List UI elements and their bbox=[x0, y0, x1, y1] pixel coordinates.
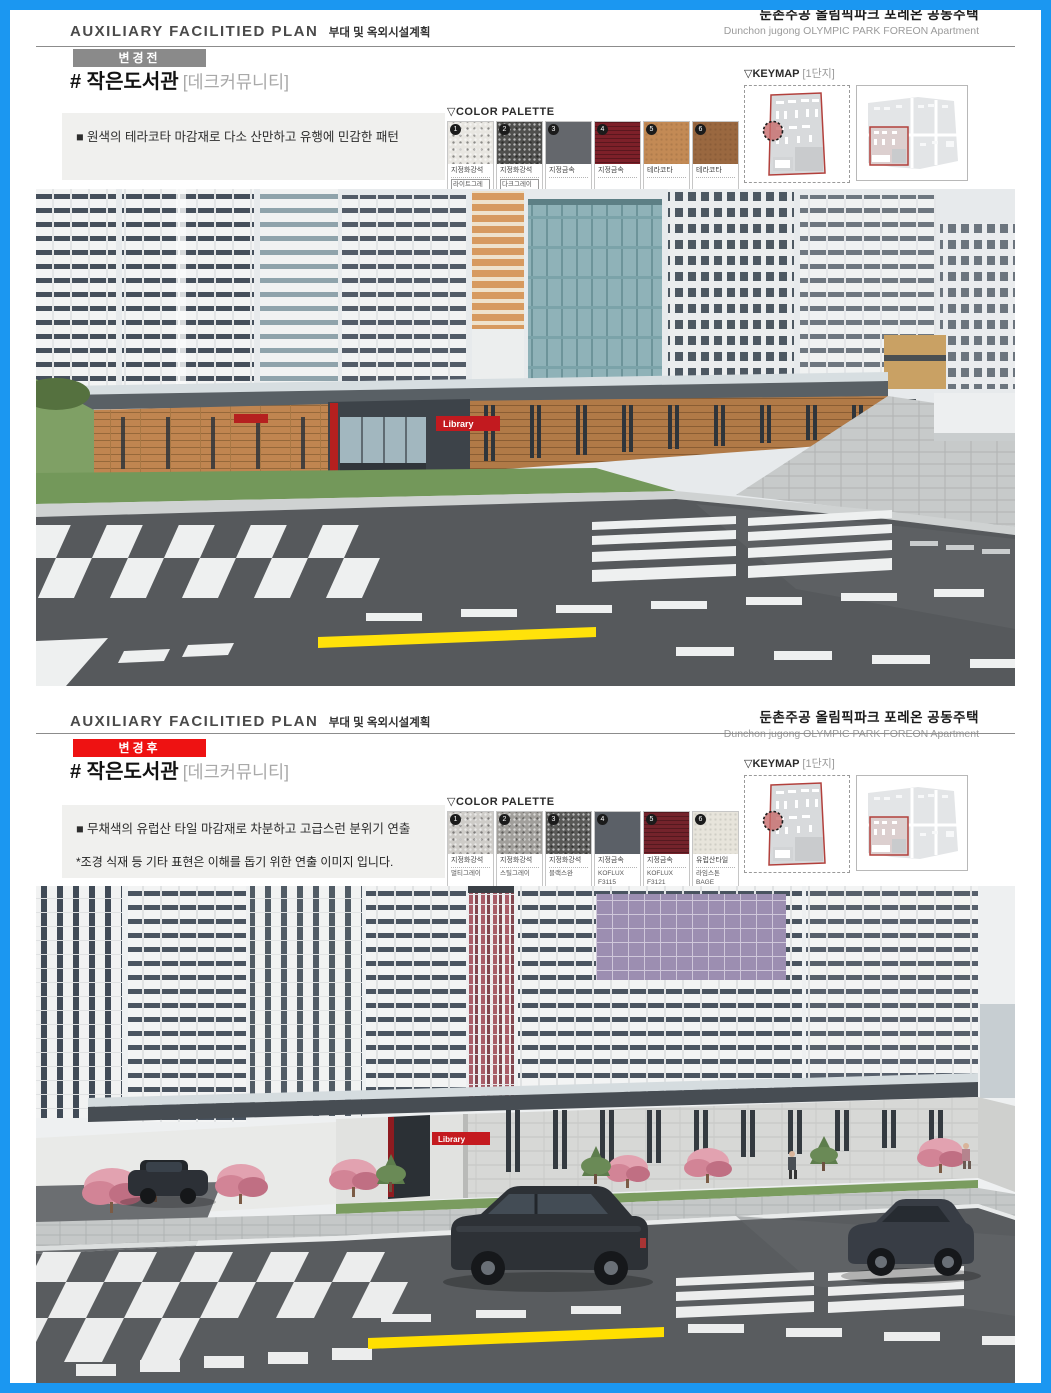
keymap-title: ▽KEYMAP [1단지] bbox=[744, 755, 968, 771]
swatch-color bbox=[647, 178, 686, 188]
swatch-material: 유럽산타일 bbox=[696, 856, 735, 868]
keymap-maps bbox=[744, 775, 968, 873]
swatch-number: 3 bbox=[548, 124, 559, 135]
small-sign bbox=[234, 414, 268, 423]
swatch-card: 3 지정화강석블랙스완 bbox=[545, 811, 592, 890]
keymap-site-plan bbox=[744, 85, 850, 183]
entrance-recess bbox=[388, 1115, 430, 1199]
keymap: ▽KEYMAP [1단지] bbox=[744, 65, 968, 183]
section-title-main: # 작은도서관 bbox=[70, 71, 179, 93]
swatch-material: 테라코타 bbox=[696, 166, 735, 178]
swatch-material: 지정화강석 bbox=[500, 856, 539, 868]
description-text: ■ 원색의 테라코타 마감재로 다소 산만하고 유행에 민감한 패턴 bbox=[76, 126, 431, 145]
color-palette-title: ▽COLOR PALETTE bbox=[447, 795, 739, 808]
render-after-svg: Library bbox=[36, 886, 1015, 1383]
swatch-number: 6 bbox=[695, 124, 706, 135]
swatch-color: KOFLUX F3121 bbox=[647, 868, 686, 887]
color-palette-title: ▽COLOR PALETTE bbox=[447, 105, 739, 118]
swatch-material: 지정금속 bbox=[598, 856, 637, 868]
location-marker bbox=[764, 812, 783, 831]
swatch-color bbox=[549, 178, 588, 188]
swatch-material: 테라코타 bbox=[647, 166, 686, 178]
keymap-maps bbox=[744, 85, 968, 183]
swatch-card: 4 지정금속KOFLUX F3115 bbox=[594, 811, 641, 890]
section-title-sub: [데크커뮤니티] bbox=[183, 762, 289, 782]
panel-before: AUXILIARY FACILITIED PLAN 부대 및 옥외시설계획 둔촌… bbox=[10, 10, 1041, 700]
swatch-card: 2 지정화강석스틸그레이 bbox=[496, 811, 543, 890]
swatch-number: 4 bbox=[597, 814, 608, 825]
keymap-label: ▽KEYMAP bbox=[744, 758, 799, 770]
plan-title-en: AUXILIARY FACILITIED PLAN bbox=[70, 23, 318, 40]
location-marker bbox=[764, 122, 783, 141]
svg-text:Library: Library bbox=[443, 419, 474, 429]
description-box: ■ 무채색의 유럽산 타일 마감재로 차분하고 고급스런 분위기 연출 *조경 … bbox=[62, 805, 445, 878]
swatch-row: 1 지정화강석멀티그레이 2 지정화강석스틸그레이 3 지정화강석블랙스완 4 … bbox=[447, 811, 739, 890]
color-palette: ▽COLOR PALETTE 1 지정화강석멀티그레이 2 지정화강석스틸그레이… bbox=[447, 795, 739, 890]
render-before-svg: Library bbox=[36, 189, 1015, 686]
swatch-number: 5 bbox=[646, 814, 657, 825]
keymap-title: ▽KEYMAP [1단지] bbox=[744, 65, 968, 81]
render-after: Library bbox=[36, 886, 1015, 1383]
project-name-en: Dunchon jugong OLYMPIC PARK FOREON Apart… bbox=[724, 25, 979, 37]
keymap-label: ▽KEYMAP bbox=[744, 68, 799, 80]
swatch-material: 지정금속 bbox=[598, 166, 637, 178]
material-swatch: 5 bbox=[644, 122, 689, 164]
swatch-number: 6 bbox=[695, 814, 706, 825]
description-footnote: *조경 식재 등 기타 표현은 이해를 돕기 위한 연출 이미지 입니다. bbox=[76, 853, 431, 870]
section-title: # 작은도서관[데크커뮤니티] bbox=[70, 65, 289, 94]
material-swatch: 2 bbox=[497, 122, 542, 164]
swatch-material: 지정금속 bbox=[647, 856, 686, 868]
render-before: Library bbox=[36, 189, 1015, 686]
swatch-material: 지정화강석 bbox=[549, 856, 588, 868]
panel-after: AUXILIARY FACILITIED PLAN 부대 및 옥외시설계획 둔촌… bbox=[10, 700, 1041, 1383]
svg-text:Library: Library bbox=[438, 1135, 466, 1144]
swatch-color bbox=[598, 178, 637, 188]
swatch-card: 1 지정화강석멀티그레이 bbox=[447, 811, 494, 890]
material-swatch: 6 bbox=[693, 812, 738, 854]
project-name-ko: 둔촌주공 올림픽파크 포레온 공동주택 bbox=[724, 10, 979, 23]
page-header-left: AUXILIARY FACILITIED PLAN 부대 및 옥외시설계획 bbox=[70, 23, 430, 41]
complex-plan-svg bbox=[862, 781, 962, 865]
section-title: # 작은도서관[데크커뮤니티] bbox=[70, 755, 289, 784]
complex-plan-svg bbox=[862, 91, 962, 175]
swatch-number: 3 bbox=[548, 814, 559, 825]
keymap-site-plan bbox=[744, 775, 850, 873]
swatch-material: 지정금속 bbox=[549, 166, 588, 178]
header-divider bbox=[36, 733, 1015, 734]
description-box: ■ 원색의 테라코타 마감재로 다소 산만하고 유행에 민감한 패턴 bbox=[62, 113, 445, 180]
material-swatch: 3 bbox=[546, 812, 591, 854]
swatch-card: 6 유럽산타일라임스톤 BAGE bbox=[692, 811, 739, 890]
site-plan-svg bbox=[749, 779, 845, 869]
page-header-right: 둔촌주공 올림픽파크 포레온 공동주택 Dunchon jugong OLYMP… bbox=[724, 10, 979, 37]
page-header-left: AUXILIARY FACILITIED PLAN 부대 및 옥외시설계획 bbox=[70, 713, 430, 731]
material-swatch: 1 bbox=[448, 812, 493, 854]
plan-title-en: AUXILIARY FACILITIED PLAN bbox=[70, 713, 318, 730]
plan-title-ko: 부대 및 옥외시설계획 bbox=[329, 717, 431, 729]
material-swatch: 2 bbox=[497, 812, 542, 854]
section-title-sub: [데크커뮤니티] bbox=[183, 72, 289, 92]
material-swatch: 6 bbox=[693, 122, 738, 164]
swatch-material: 지정화강석 bbox=[451, 856, 490, 868]
material-swatch: 3 bbox=[546, 122, 591, 164]
swatch-number: 4 bbox=[597, 124, 608, 135]
library-sign: Library bbox=[432, 1132, 490, 1145]
material-swatch: 5 bbox=[644, 812, 689, 854]
project-name-ko: 둔촌주공 올림픽파크 포레온 공동주택 bbox=[724, 706, 979, 726]
description-text: ■ 무채색의 유럽산 타일 마감재로 차분하고 고급스런 분위기 연출 bbox=[76, 818, 431, 837]
project-name-en: Dunchon jugong OLYMPIC PARK FOREON Apart… bbox=[724, 728, 979, 740]
red-accent bbox=[330, 403, 338, 475]
keymap-complex-plan bbox=[856, 775, 968, 871]
plan-title-ko: 부대 및 옥외시설계획 bbox=[329, 27, 431, 39]
swatch-number: 5 bbox=[646, 124, 657, 135]
keymap-tag: [1단지] bbox=[802, 758, 834, 770]
swatch-number: 2 bbox=[499, 814, 510, 825]
swatch-color: 스틸그레이 bbox=[500, 868, 539, 878]
library-sign: Library bbox=[436, 416, 500, 431]
swatch-color: 멀티그레이 bbox=[451, 868, 490, 878]
material-swatch: 4 bbox=[595, 122, 640, 164]
presentation-page: AUXILIARY FACILITIED PLAN 부대 및 옥외시설계획 둔촌… bbox=[0, 0, 1051, 1393]
section-title-main: # 작은도서관 bbox=[70, 761, 179, 783]
swatch-number: 1 bbox=[450, 814, 461, 825]
keymap-complex-plan bbox=[856, 85, 968, 181]
swatch-material: 지정화강석 bbox=[500, 166, 539, 178]
swatch-color: 블랙스완 bbox=[549, 868, 588, 878]
swatch-color bbox=[696, 178, 735, 188]
material-swatch: 1 bbox=[448, 122, 493, 164]
material-swatch: 4 bbox=[595, 812, 640, 854]
swatch-card: 5 지정금속KOFLUX F3121 bbox=[643, 811, 690, 890]
keymap: ▽KEYMAP [1단지] bbox=[744, 755, 968, 873]
swatch-color: 라임스톤 BAGE bbox=[696, 868, 735, 887]
purple-glass-section bbox=[596, 894, 786, 980]
swatch-material: 지정화강석 bbox=[451, 166, 490, 178]
keymap-tag: [1단지] bbox=[802, 68, 834, 80]
page-header-right: 둔촌주공 올림픽파크 포레온 공동주택 Dunchon jugong OLYMP… bbox=[724, 706, 979, 740]
swatch-number: 2 bbox=[499, 124, 510, 135]
header-divider bbox=[36, 46, 1015, 47]
swatch-color: KOFLUX F3115 bbox=[598, 868, 637, 887]
site-plan-svg bbox=[749, 89, 845, 179]
swatch-number: 1 bbox=[450, 124, 461, 135]
